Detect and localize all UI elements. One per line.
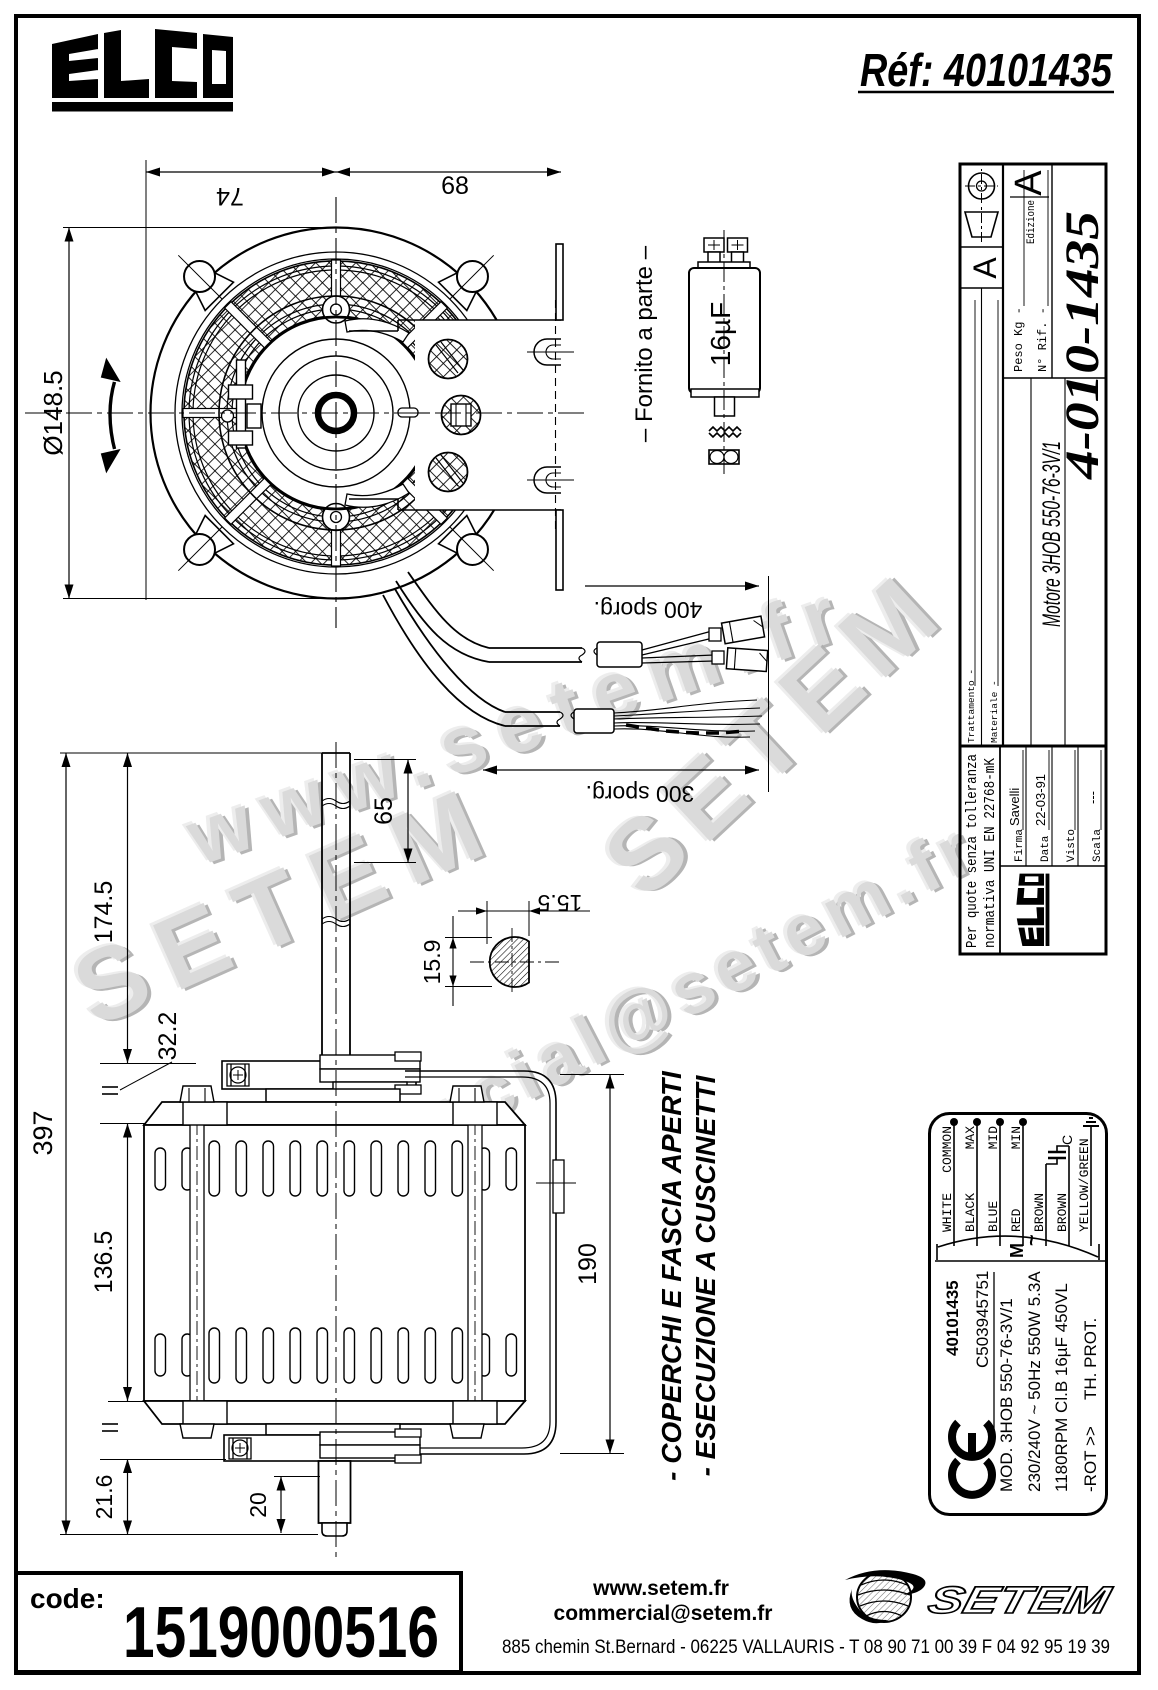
- svg-text:190: 190: [574, 1243, 602, 1285]
- svg-text:www.setem.fr: www.setem.fr: [592, 1577, 729, 1600]
- svg-text:MIN: MIN: [1009, 1126, 1024, 1149]
- svg-text:15.5: 15.5: [538, 890, 583, 916]
- svg-text:136.5: 136.5: [90, 1231, 118, 1294]
- svg-text:22-03-91: 22-03-91: [1033, 774, 1048, 826]
- svg-text:Visto: Visto: [1066, 829, 1078, 862]
- svg-text:230/240V ~ 50Hz 550W 5.3A: 230/240V ~ 50Hz 550W 5.3A: [1025, 1271, 1044, 1492]
- svg-text:885 chemin St.Bernard - 0622: 885 chemin St.Bernard - 06225 VALLAURIS …: [502, 1637, 1110, 1658]
- svg-text:MAX: MAX: [963, 1126, 978, 1150]
- svg-text:20: 20: [245, 1492, 271, 1518]
- svg-text:397: 397: [28, 1110, 58, 1155]
- svg-text:C503945751: C503945751: [973, 1271, 992, 1368]
- svg-text:– Fornito a parte –: – Fornito a parte –: [631, 245, 658, 442]
- svg-text:4-010-1435: 4-010-1435: [1056, 211, 1109, 480]
- svg-text:Réf: 40101435: Réf: 40101435: [860, 44, 1113, 96]
- svg-text:Ø148.5: Ø148.5: [38, 370, 68, 455]
- svg-text:15.9: 15.9: [419, 940, 445, 985]
- svg-text:174.5: 174.5: [90, 881, 118, 944]
- svg-text:A: A: [967, 257, 1003, 279]
- svg-text:- ESECUZIONE A CUSCINETTI: - ESECUZIONE A CUSCINETTI: [690, 1074, 721, 1476]
- svg-text:BLACK: BLACK: [963, 1193, 978, 1232]
- svg-text:300 sporg.: 300 sporg.: [586, 781, 695, 807]
- svg-text:Data: Data: [1040, 835, 1052, 862]
- svg-text:-ROT >>: -ROT >>: [1081, 1426, 1100, 1492]
- svg-text:Edizione: Edizione: [1026, 200, 1038, 244]
- svg-text:Per quote senza tolleranza: Per quote senza tolleranza: [964, 754, 981, 948]
- svg-text:40101435: 40101435: [943, 1280, 962, 1356]
- svg-text:BROWN: BROWN: [1055, 1193, 1070, 1232]
- svg-text:21.6: 21.6: [91, 1475, 117, 1520]
- svg-text:RED: RED: [1009, 1208, 1024, 1232]
- svg-text:MOD. 3HOB 550-76-3V/1: MOD. 3HOB 550-76-3V/1: [997, 1298, 1016, 1492]
- svg-text:YELLOW/GREEN: YELLOW/GREEN: [1077, 1138, 1092, 1232]
- svg-text:400 sporg.: 400 sporg.: [594, 597, 703, 623]
- svg-text:SETEM: SETEM: [924, 1580, 1116, 1622]
- svg-text:Firma: Firma: [1014, 829, 1026, 862]
- svg-text:74: 74: [216, 182, 244, 210]
- svg-text:MID: MID: [986, 1126, 1001, 1150]
- svg-text:32.2: 32.2: [154, 1012, 182, 1061]
- svg-text:A: A: [1008, 170, 1050, 196]
- svg-text:~: ~: [1021, 1234, 1043, 1246]
- svg-text:65: 65: [370, 797, 398, 825]
- svg-text:1180RPM Cl.B 16µF 450VL: 1180RPM Cl.B 16µF 450VL: [1052, 1283, 1071, 1492]
- svg-text:68: 68: [441, 172, 469, 200]
- svg-text:TH. PROT.: TH. PROT.: [1081, 1318, 1100, 1400]
- svg-text:commercial@setem.fr: commercial@setem.fr: [554, 1602, 773, 1625]
- svg-text:normativa UNI EN 22768-mK: normativa UNI EN 22768-mK: [982, 758, 999, 948]
- svg-text:- COPERCHI E FASCIA APERTI: - COPERCHI E FASCIA APERTI: [656, 1070, 687, 1481]
- svg-text:COMMON: COMMON: [940, 1126, 955, 1173]
- svg-text:---: ---: [1085, 791, 1100, 804]
- svg-text:1519000516: 1519000516: [123, 1593, 439, 1673]
- svg-text:Materiale -: Materiale -: [989, 680, 1000, 743]
- svg-text:N° Rif. -: N° Rif. -: [1036, 307, 1050, 372]
- svg-text:Peso Kg -: Peso Kg -: [1012, 307, 1026, 372]
- svg-text:BROWN: BROWN: [1032, 1193, 1047, 1232]
- svg-text:Scala: Scala: [1092, 829, 1104, 862]
- svg-text:16µF: 16µF: [705, 302, 736, 366]
- svg-text:C: C: [1059, 1135, 1075, 1145]
- svg-text:code:: code:: [30, 1583, 105, 1614]
- svg-text:BLUE: BLUE: [986, 1201, 1001, 1232]
- svg-text:WHITE: WHITE: [940, 1193, 955, 1232]
- svg-text:Savelli: Savelli: [1007, 788, 1022, 826]
